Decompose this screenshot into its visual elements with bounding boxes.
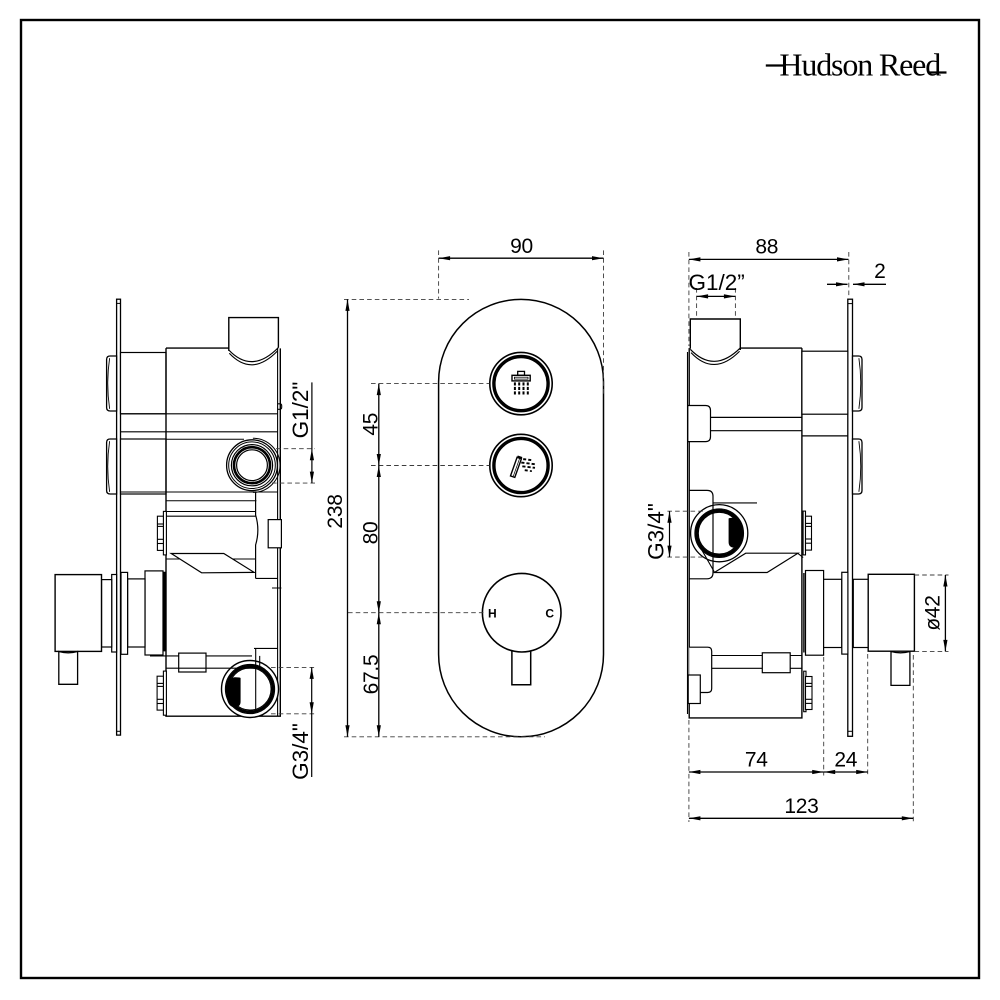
- svg-text:C: C: [545, 606, 554, 620]
- svg-text:G1/2": G1/2": [288, 382, 313, 439]
- svg-text:H: H: [488, 606, 497, 620]
- svg-text:238: 238: [324, 494, 347, 528]
- svg-text:67.5: 67.5: [360, 655, 383, 695]
- svg-text:G1/2”: G1/2”: [689, 270, 745, 295]
- svg-text:2: 2: [874, 260, 885, 283]
- svg-text:123: 123: [784, 795, 818, 818]
- svg-text:88: 88: [755, 235, 778, 258]
- svg-text:G3/4": G3/4": [644, 503, 669, 560]
- svg-text:Hudson Reed: Hudson Reed: [779, 47, 941, 83]
- svg-text:ø42: ø42: [922, 595, 945, 630]
- svg-text:G3/4": G3/4": [288, 723, 313, 780]
- svg-text:80: 80: [360, 522, 383, 545]
- svg-text:45: 45: [360, 413, 383, 436]
- svg-text:74: 74: [745, 749, 768, 772]
- svg-text:24: 24: [834, 749, 857, 772]
- svg-text:90: 90: [510, 235, 533, 258]
